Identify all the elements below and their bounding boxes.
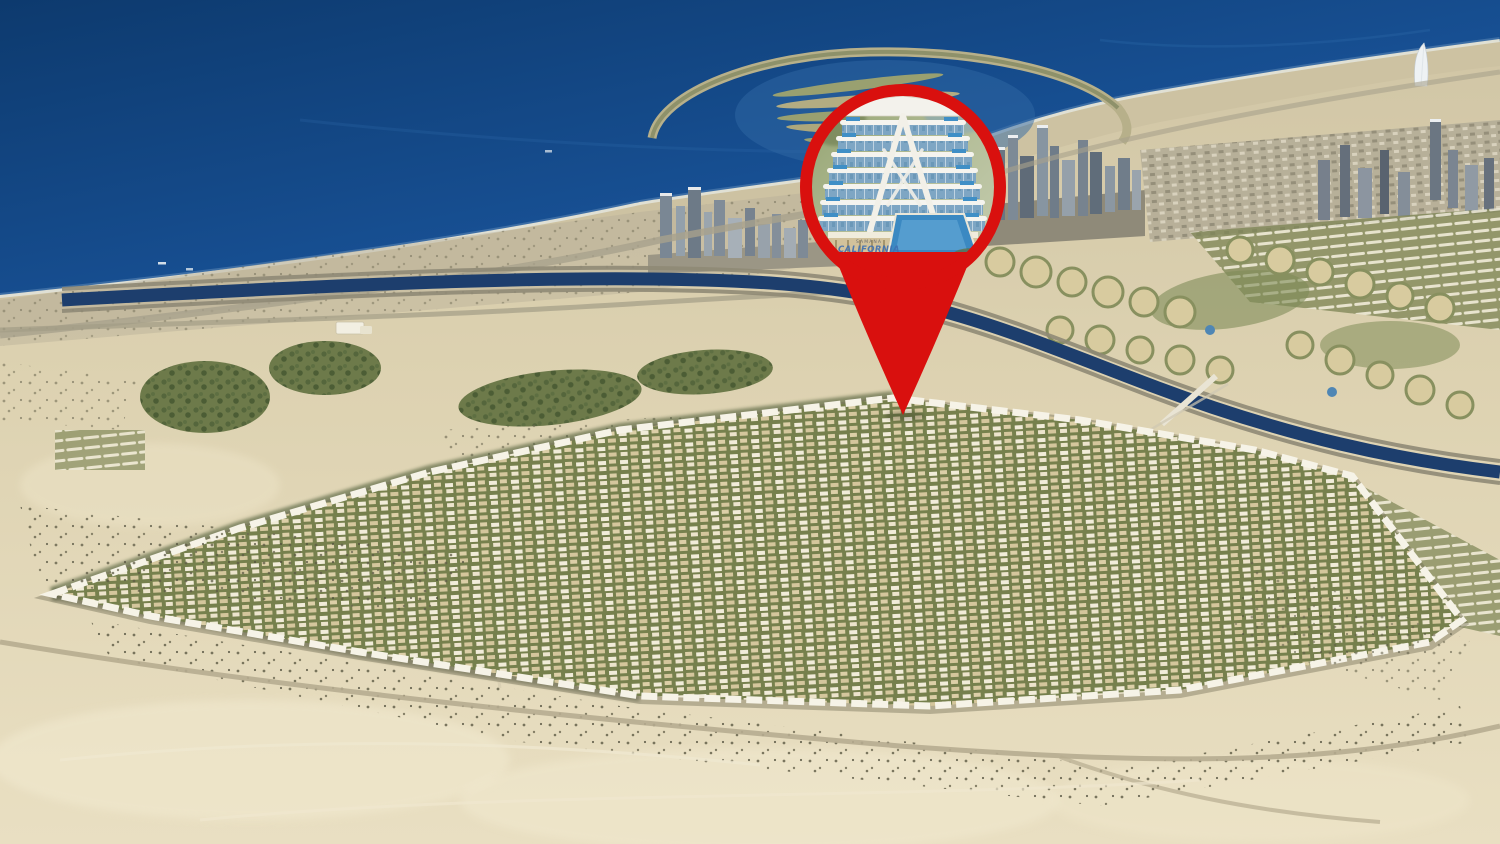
scene-canvas: SAMANA CALIFORNIA <box>0 0 1500 844</box>
boat <box>545 150 552 153</box>
farm-rows <box>55 430 145 470</box>
lake <box>1327 387 1337 397</box>
tree-plantation <box>140 361 270 433</box>
aerial-scene: SAMANA CALIFORNIA <box>0 0 1500 844</box>
pool-water <box>896 220 967 250</box>
lake <box>1205 325 1215 335</box>
tree-plantation <box>269 341 381 395</box>
pin-shadow <box>885 411 925 421</box>
boat <box>158 262 166 265</box>
boat <box>186 268 193 271</box>
